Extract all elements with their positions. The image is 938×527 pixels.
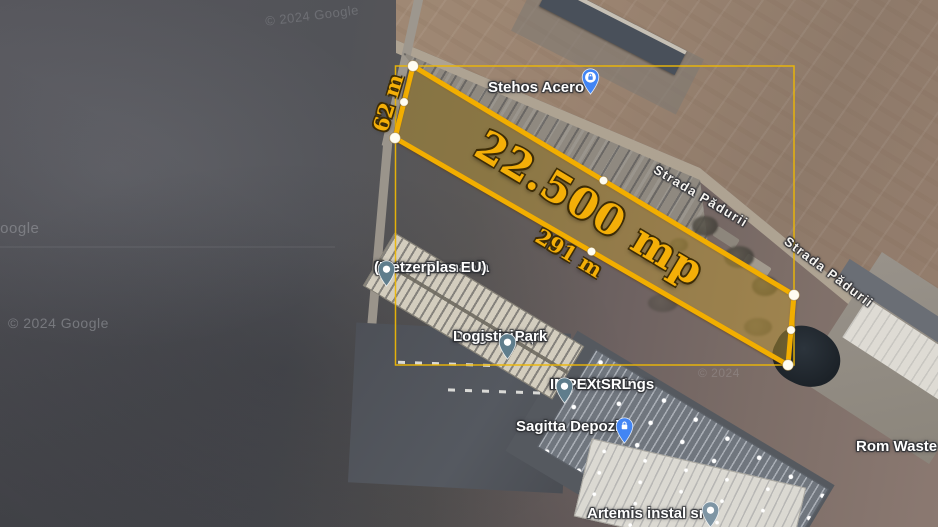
google-watermark: © 2024 Google — [8, 315, 109, 331]
place-pin-icon[interactable] — [555, 377, 574, 404]
place-label-artemis-instal[interactable]: Artemis instal srl — [587, 506, 709, 523]
google-watermark: © 2024 — [698, 366, 740, 380]
imagery-seam — [0, 246, 335, 248]
place-pin-icon[interactable] — [701, 501, 720, 527]
tree — [744, 318, 772, 336]
tree — [724, 246, 754, 268]
tree — [752, 276, 778, 296]
place-pin-icon[interactable] — [498, 333, 517, 360]
place-label-rom-waste[interactable]: Rom Waste S — [856, 439, 938, 456]
tree — [692, 216, 718, 236]
google-watermark: Google — [0, 220, 39, 237]
place-label-stehos-acero[interactable]: Stehos Acero — [488, 80, 584, 97]
shopping-pin-icon[interactable] — [581, 68, 600, 95]
shopping-pin-icon[interactable] — [615, 417, 634, 444]
satellite-map[interactable]: © 2024 Google Google © 2024 Google © 202… — [0, 0, 938, 527]
place-label-sagitta-depozit[interactable]: Sagitta Depozit — [516, 419, 624, 436]
place-pin-icon[interactable] — [377, 260, 396, 287]
tree — [648, 294, 678, 312]
